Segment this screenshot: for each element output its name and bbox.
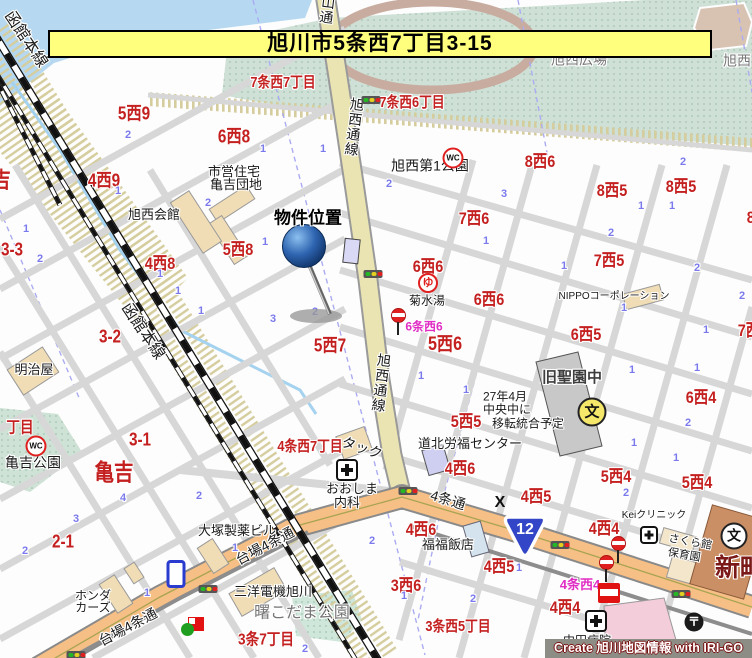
block-number: 4: [120, 493, 126, 505]
pin-shadow: [290, 309, 342, 323]
block-number: 1: [157, 269, 163, 281]
area-label: 8西5: [597, 182, 628, 200]
traffic-light-icon: [199, 585, 218, 593]
wc-icon: WC: [26, 436, 47, 457]
area-label: 3条西5丁目: [425, 619, 490, 635]
area-label: 5西4: [682, 474, 713, 492]
place-label: タック: [340, 435, 384, 462]
road-label: 旭西通線: [343, 96, 365, 157]
block-number: 2: [685, 418, 691, 430]
wc-icon: WC: [443, 148, 464, 169]
area-label: 6西4: [686, 389, 717, 407]
hospital-icon-small: [640, 526, 658, 544]
property-location-label: 物件位置: [274, 204, 342, 229]
block-number: 2: [196, 491, 202, 503]
area-label: 6西5: [571, 326, 602, 344]
place-label: 亀吉団地: [210, 178, 262, 192]
place-label: 移転統合予定: [492, 418, 564, 431]
place-label: 明治屋: [14, 363, 53, 377]
block-number: 1: [631, 438, 637, 450]
place-label: 福福飯店: [422, 538, 474, 552]
place-label: 内科: [334, 496, 360, 510]
traffic-light-icon: [399, 487, 418, 495]
block-number: 1: [232, 543, 238, 555]
block-number: 1: [669, 201, 675, 213]
bus-stop-icon: [599, 555, 613, 583]
area-label: 4西4: [550, 599, 581, 617]
gas-station-icon: [598, 583, 620, 603]
school-icon-yellow: 文: [578, 398, 607, 427]
block-number: 2: [22, 546, 28, 558]
area-label: 6西6: [474, 291, 505, 309]
block-number: 3: [73, 514, 79, 526]
area-label: 8西6: [525, 153, 556, 171]
place-label: Keiクリニック: [622, 511, 686, 522]
area-label: 4条西7丁目: [277, 439, 342, 455]
block-number: 1: [483, 236, 489, 248]
block-number: 1: [175, 286, 181, 298]
block-number: 1: [144, 588, 150, 600]
area-label: 6西8: [218, 128, 250, 147]
road-label: 山通: [318, 0, 336, 26]
place-label: NIPPOコーポレーション: [559, 292, 670, 303]
block-number: 1: [694, 363, 700, 375]
busstop-label: 4条西4: [560, 578, 600, 592]
pin-needle: [308, 262, 330, 314]
area-label: 7条西6丁目: [379, 95, 444, 111]
block-number: 1: [401, 591, 407, 603]
block-number: 1: [418, 371, 424, 383]
place-label: 三洋電機旭川: [234, 585, 312, 599]
place-label: 新町: [715, 555, 752, 581]
place-label: 亀吉公園: [5, 456, 61, 471]
place-label: 道北労福センター: [418, 437, 522, 451]
hospital-icon-dark: [585, 610, 607, 632]
area-label: 8西4: [747, 209, 752, 227]
block-number: 2: [680, 157, 686, 169]
block-number: 1: [703, 325, 709, 337]
area-label: 5西4: [601, 468, 632, 486]
block-number: 1: [320, 144, 326, 156]
map-screenshot: 12 物件位置 7条西7丁目7条西6丁目5西96西88西64西98西58西5亀吉…: [0, 0, 752, 658]
block-number: 1: [260, 144, 266, 156]
block-number: 1: [463, 385, 469, 397]
road-label: 旭西通線: [370, 352, 392, 413]
area-label: 5西5: [451, 413, 482, 431]
area-label: 4西5: [484, 558, 515, 576]
block-number: 1: [673, 453, 679, 465]
shield-icon-blue: [167, 560, 186, 588]
block-number: 1: [621, 303, 627, 315]
label-layer: 7条西7丁目7条西6丁目5西96西88西64西98西58西5亀吉7西68西45西…: [0, 0, 752, 658]
area-label: 5西8: [223, 241, 254, 259]
school-icon: 文: [721, 523, 748, 550]
place-label: 菊水湯: [409, 295, 445, 308]
place-label: 27年4月: [483, 391, 527, 404]
block-number: 2: [125, 130, 131, 142]
area-label: 亀吉: [0, 168, 11, 191]
area-label: 5西6: [428, 335, 462, 355]
store-icon: [188, 617, 204, 631]
block-number: 2: [37, 254, 43, 266]
area-label: 亀吉: [94, 460, 133, 484]
block-number: 1: [23, 224, 29, 236]
place-label: カーズ: [75, 602, 110, 615]
block-number: 1: [638, 201, 644, 213]
block-number: 2: [369, 536, 375, 548]
pin-ball: [283, 225, 326, 268]
block-number: 2: [302, 644, 308, 656]
place-label: おおしま: [326, 482, 378, 496]
block-number: 1: [516, 563, 522, 575]
place-label: 曙こだま公園: [254, 606, 350, 623]
area-label: 2-1: [52, 533, 74, 552]
traffic-light-icon: [362, 96, 381, 104]
credit-bar: Create 旭川地図情報 with IRI-GO: [545, 639, 752, 658]
block-number: 2: [470, 594, 476, 606]
block-number: 1: [115, 186, 121, 198]
area-label: 5西9: [118, 105, 150, 124]
area-label: 5西7: [314, 337, 346, 356]
place-label: 旧聖園中: [542, 370, 602, 386]
area-label: 7西5: [594, 252, 625, 270]
block-number: 1: [629, 365, 635, 377]
area-label: 3-2: [99, 328, 121, 347]
address-banner: 旭川市5条西7丁目3-15: [48, 30, 712, 58]
bath-icon: ゆ: [418, 273, 438, 293]
traffic-light-icon: [67, 651, 86, 658]
block-number: 3: [501, 189, 507, 201]
hospital-icon: [336, 459, 358, 481]
area-label: 7西6: [459, 210, 490, 228]
area-label: 4西6: [445, 460, 476, 478]
busstop-label: 6条西6: [405, 321, 442, 334]
bus-stop-icon: [391, 308, 405, 336]
road-label: 函館本線: [0, 9, 50, 71]
traffic-light-icon: [551, 541, 570, 549]
block-number: 2: [739, 291, 745, 303]
route-number: 12: [516, 521, 534, 538]
block-number: 2: [386, 179, 392, 191]
block-number: 2: [694, 263, 700, 275]
area-label: 3条7丁目: [238, 633, 294, 650]
road-label: 函館本線: [117, 301, 167, 363]
police-x-icon: X: [495, 494, 506, 512]
place-label: 旭西: [723, 54, 751, 69]
area-label: 7西4: [738, 322, 752, 340]
traffic-light-icon: [672, 590, 691, 598]
area-label: 8西5: [666, 178, 697, 196]
post-office-icon: 〒: [685, 613, 704, 632]
area-label: 3-3: [1, 241, 23, 260]
traffic-light-icon: [364, 270, 383, 278]
area-label: 7条西7丁目: [250, 75, 315, 91]
area-label: 丁目: [6, 421, 33, 438]
block-number: 1: [561, 261, 567, 273]
block-number: 2: [205, 198, 211, 210]
road-label: 4条通: [429, 488, 468, 513]
route-12-shield: 12: [502, 511, 548, 557]
area-label: 3-1: [129, 431, 151, 450]
block-number: 2: [623, 488, 629, 500]
place-label: 旭西会館: [128, 208, 180, 222]
block-number: 1: [198, 306, 204, 318]
place-label: 中央中に: [483, 404, 531, 417]
area-label: 4西5: [521, 488, 552, 506]
block-number: 2: [608, 228, 614, 240]
